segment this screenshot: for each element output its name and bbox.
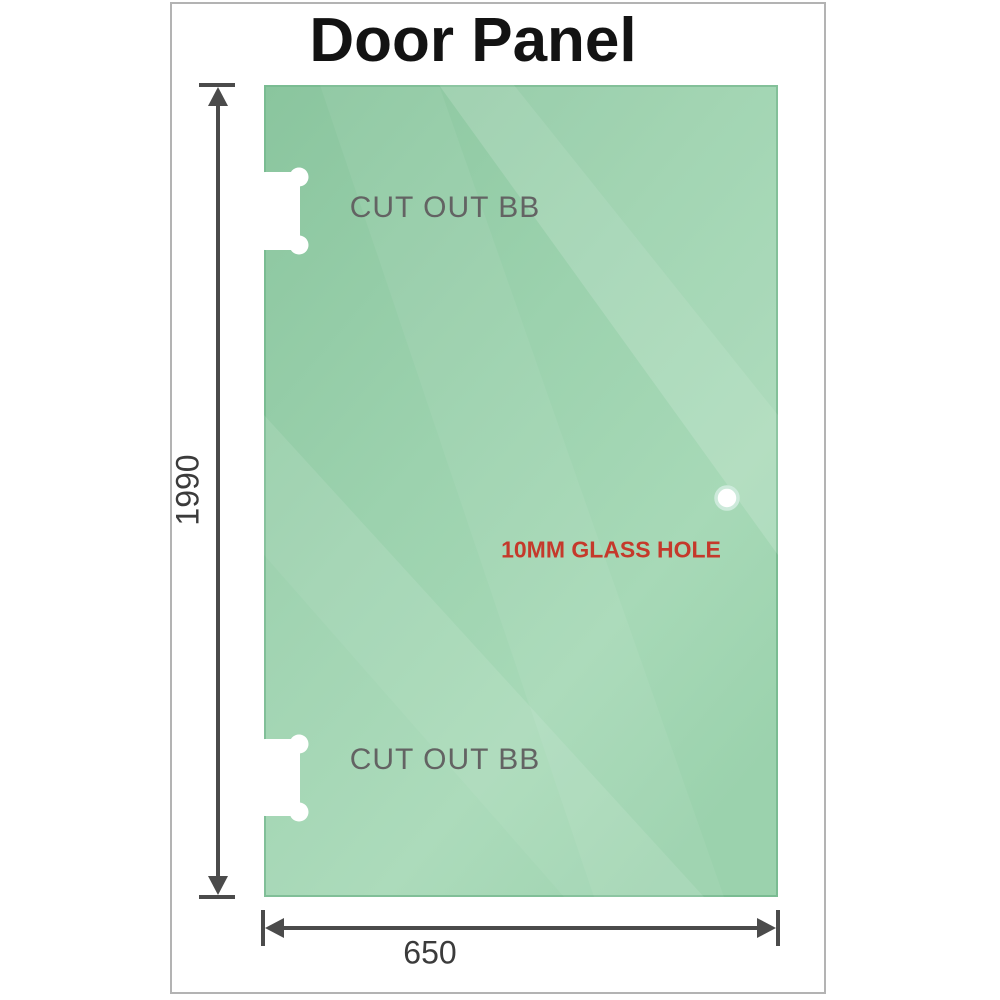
diagram-title: Door Panel [309,10,636,72]
width-dimension [256,906,784,950]
cutout-label-bottom: CUT OUT BB [350,743,541,777]
height-dim-arrow-down-icon [208,876,228,895]
door-panel-diagram: Door Panel [0,0,1000,1000]
height-dim-arrow-up-icon [208,87,228,106]
glass-hole-label: 10MM GLASS HOLE [501,537,721,564]
width-dim-arrow-right-icon [757,918,776,938]
cutout-label-top: CUT OUT BB [350,191,541,225]
width-dimension-value: 650 [403,935,456,972]
height-dimension-value: 1990 [170,454,207,525]
glass-hole [716,487,738,509]
width-dim-arrow-left-icon [265,918,284,938]
